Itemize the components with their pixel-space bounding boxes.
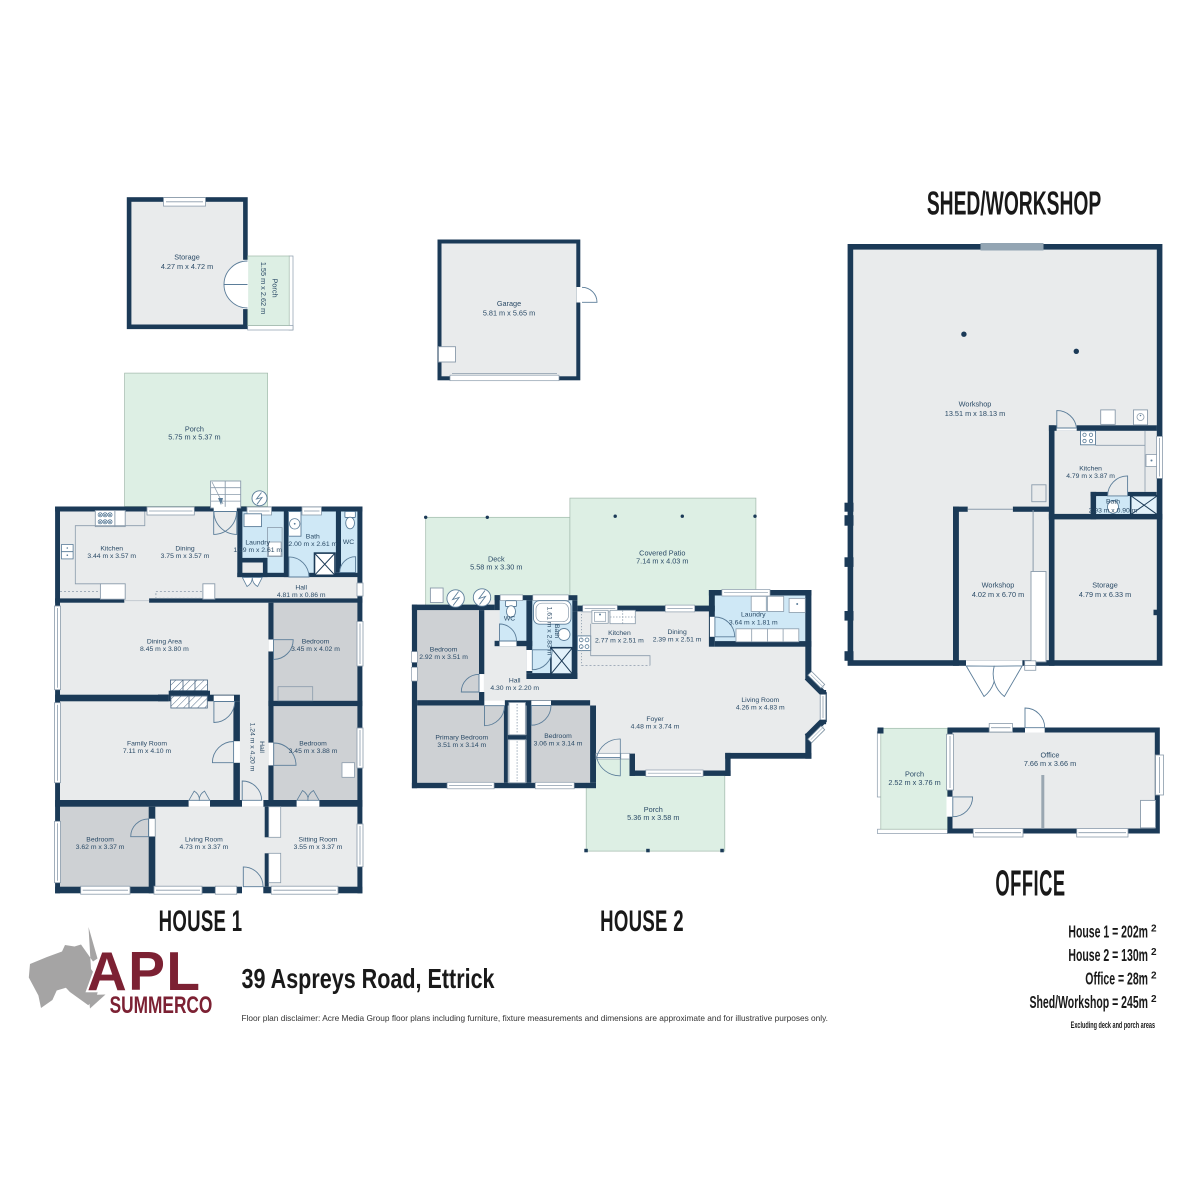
- svg-text:Laundry: Laundry: [741, 612, 766, 619]
- svg-text:3.51 m x 3.14 m: 3.51 m x 3.14 m: [437, 742, 486, 749]
- svg-text:3.45 m x 4.02 m: 3.45 m x 4.02 m: [291, 646, 340, 653]
- svg-text:Family Room: Family Room: [127, 741, 167, 748]
- svg-text:Bedroom: Bedroom: [302, 639, 330, 646]
- svg-text:HOUSE 1: HOUSE 1: [159, 905, 243, 939]
- svg-text:Bedroom: Bedroom: [299, 741, 327, 748]
- svg-text:Workshop: Workshop: [959, 400, 992, 409]
- svg-text:Shed/Workshop = 245m: Shed/Workshop = 245m: [1030, 993, 1148, 1012]
- svg-text:4.73 m x 3.37 m: 4.73 m x 3.37 m: [180, 844, 229, 851]
- svg-text:2.77 m x 2.51 m: 2.77 m x 2.51 m: [595, 638, 644, 645]
- svg-text:3.64 m x 1.81 m: 3.64 m x 1.81 m: [729, 620, 778, 627]
- svg-text:4.79 m x 3.87 m: 4.79 m x 3.87 m: [1066, 473, 1115, 480]
- svg-text:WC: WC: [504, 616, 515, 623]
- svg-text:Floor plan disclaimer: Acre Me: Floor plan disclaimer: Acre Media Group …: [242, 1013, 828, 1023]
- svg-text:1.55 m x 2.62 m: 1.55 m x 2.62 m: [259, 262, 268, 314]
- svg-text:5.75 m x 5.37 m: 5.75 m x 5.37 m: [168, 433, 220, 442]
- svg-text:5.58 m x 3.30 m: 5.58 m x 3.30 m: [470, 563, 522, 572]
- svg-text:3.62 m x 3.37 m: 3.62 m x 3.37 m: [76, 844, 125, 851]
- svg-text:3.45 m x 3.88 m: 3.45 m x 3.88 m: [289, 748, 338, 755]
- svg-text:Hall: Hall: [258, 741, 265, 753]
- svg-text:4.79 m x 6.33 m: 4.79 m x 6.33 m: [1079, 590, 1131, 599]
- svg-text:OFFICE: OFFICE: [995, 864, 1065, 904]
- svg-text:Foyer: Foyer: [646, 716, 664, 723]
- svg-text:Hall: Hall: [295, 585, 307, 592]
- svg-text:8.45 m x 3.80 m: 8.45 m x 3.80 m: [140, 646, 189, 653]
- svg-text:Bath: Bath: [1106, 499, 1120, 506]
- svg-text:2: 2: [1151, 994, 1157, 1005]
- svg-text:Dining: Dining: [175, 546, 194, 553]
- svg-text:Storage: Storage: [174, 253, 200, 262]
- svg-text:Primary Bedroom: Primary Bedroom: [435, 735, 488, 742]
- svg-text:SHED/WORKSHOP: SHED/WORKSHOP: [927, 184, 1101, 222]
- svg-text:4.27 m x 4.72 m: 4.27 m x 4.72 m: [161, 262, 213, 271]
- svg-text:2.52 m x 3.76 m: 2.52 m x 3.76 m: [888, 778, 940, 787]
- svg-text:2.93 m x 0.90 m: 2.93 m x 0.90 m: [1089, 508, 1138, 515]
- svg-text:Bedroom: Bedroom: [544, 733, 572, 740]
- svg-text:13.51 m x 18.13 m: 13.51 m x 18.13 m: [945, 409, 1005, 418]
- svg-text:Office = 28m: Office = 28m: [1085, 970, 1148, 989]
- svg-text:Dining Area: Dining Area: [147, 639, 182, 646]
- svg-text:4.02 m x 6.70 m: 4.02 m x 6.70 m: [972, 590, 1024, 599]
- svg-text:4.81 m x 0.86 m: 4.81 m x 0.86 m: [277, 592, 326, 599]
- svg-text:Living Room: Living Room: [185, 837, 223, 844]
- svg-text:3.75 m x 3.57 m: 3.75 m x 3.57 m: [161, 553, 210, 560]
- svg-text:1.24 m x 4.20 m: 1.24 m x 4.20 m: [249, 723, 256, 772]
- svg-text:2: 2: [1151, 924, 1157, 935]
- svg-text:Laundry: Laundry: [245, 540, 270, 547]
- svg-text:2.92 m x 3.51 m: 2.92 m x 3.51 m: [419, 654, 468, 661]
- svg-text:3.55 m x 3.37 m: 3.55 m x 3.37 m: [294, 844, 343, 851]
- svg-text:SUMMERCO: SUMMERCO: [110, 992, 213, 1018]
- svg-text:4.26 m x 4.83 m: 4.26 m x 4.83 m: [736, 705, 785, 712]
- svg-text:1.61 m x 2.83 m: 1.61 m x 2.83 m: [546, 607, 553, 656]
- svg-text:2: 2: [1151, 947, 1157, 958]
- svg-text:Living Room: Living Room: [741, 697, 779, 704]
- svg-text:Bath: Bath: [306, 534, 320, 541]
- svg-text:Storage: Storage: [1092, 581, 1118, 590]
- svg-text:7.66 m x 3.66 m: 7.66 m x 3.66 m: [1024, 759, 1076, 768]
- svg-text:Bedroom: Bedroom: [86, 837, 114, 844]
- svg-text:7.11 m x 4.10 m: 7.11 m x 4.10 m: [123, 748, 172, 755]
- svg-text:Kitchen: Kitchen: [1079, 466, 1102, 473]
- svg-text:5.36 m x 3.58 m: 5.36 m x 3.58 m: [627, 813, 679, 822]
- svg-text:39 Aspreys Road, Ettrick: 39 Aspreys Road, Ettrick: [242, 963, 495, 994]
- svg-text:Workshop: Workshop: [982, 581, 1015, 590]
- svg-text:House 2 = 130m: House 2 = 130m: [1068, 946, 1148, 965]
- svg-text:Hall: Hall: [509, 678, 521, 685]
- svg-text:2.00 m x 2.61 m: 2.00 m x 2.61 m: [288, 541, 337, 548]
- svg-text:House 1 = 202m: House 1 = 202m: [1068, 923, 1148, 942]
- svg-text:4.48 m x 3.74 m: 4.48 m x 3.74 m: [631, 724, 680, 731]
- svg-text:Kitchen: Kitchen: [100, 546, 123, 553]
- svg-text:1.69 m x 2.61 m: 1.69 m x 2.61 m: [233, 547, 282, 554]
- svg-text:Dining: Dining: [667, 629, 686, 636]
- svg-text:4.30 m x 2.20 m: 4.30 m x 2.20 m: [490, 685, 539, 692]
- svg-text:Garage: Garage: [497, 299, 521, 308]
- svg-text:Porch: Porch: [271, 278, 280, 297]
- svg-text:3.44 m x 3.57 m: 3.44 m x 3.57 m: [87, 553, 136, 560]
- svg-text:Excluding deck and porch areas: Excluding deck and porch areas: [1071, 1019, 1155, 1030]
- svg-text:Bedroom: Bedroom: [430, 647, 458, 654]
- svg-text:Kitchen: Kitchen: [608, 630, 631, 637]
- svg-text:WC: WC: [343, 539, 354, 546]
- svg-text:Sitting Room: Sitting Room: [299, 837, 338, 844]
- svg-text:7.14 m x 4.03 m: 7.14 m x 4.03 m: [636, 557, 688, 566]
- svg-text:5.81 m x 5.65 m: 5.81 m x 5.65 m: [483, 309, 535, 318]
- svg-text:3.06 m x 3.14 m: 3.06 m x 3.14 m: [534, 741, 583, 748]
- svg-text:2: 2: [1151, 971, 1157, 982]
- svg-text:HOUSE 2: HOUSE 2: [600, 905, 684, 939]
- svg-text:2.39 m x 2.51 m: 2.39 m x 2.51 m: [653, 637, 702, 644]
- svg-text:Bath: Bath: [553, 624, 560, 638]
